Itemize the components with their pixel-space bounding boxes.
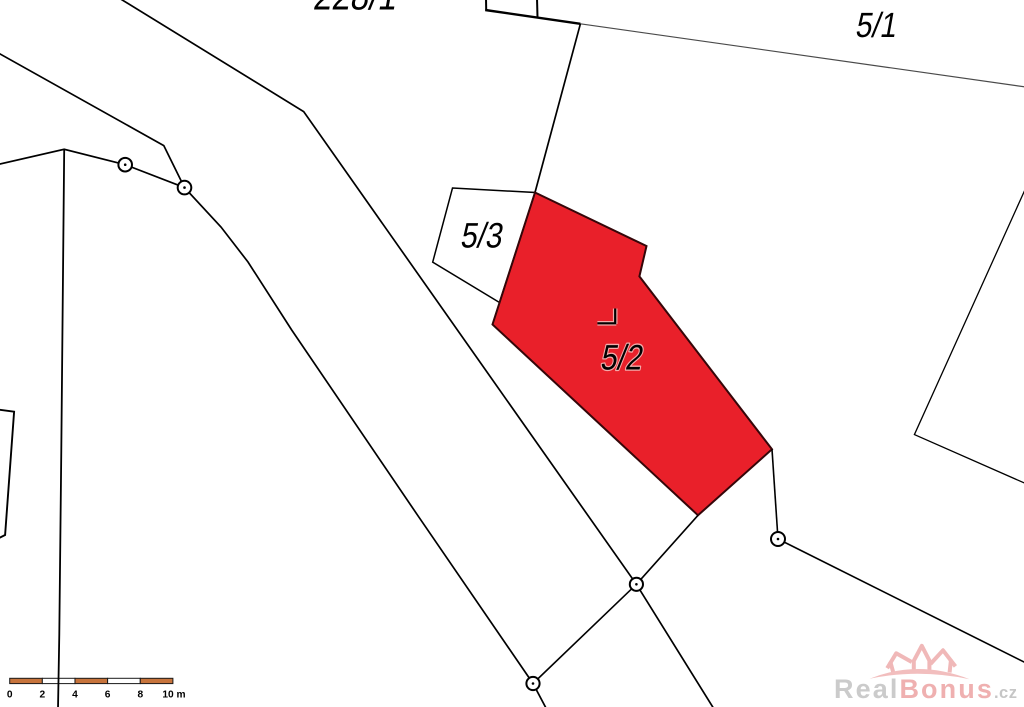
- svg-text:5/2: 5/2: [598, 338, 647, 378]
- svg-text:5/1: 5/1: [853, 5, 901, 45]
- svg-text:4: 4: [72, 690, 78, 701]
- svg-text:5/3: 5/3: [458, 216, 507, 256]
- svg-text:10 m: 10 m: [162, 690, 185, 701]
- svg-text:RealBonus.cz: RealBonus.cz: [834, 674, 1017, 704]
- svg-text:2: 2: [39, 690, 45, 701]
- svg-text:0: 0: [7, 690, 13, 701]
- svg-text:228/1: 228/1: [311, 0, 402, 18]
- svg-text:8: 8: [137, 690, 143, 701]
- svg-text:6: 6: [105, 690, 111, 701]
